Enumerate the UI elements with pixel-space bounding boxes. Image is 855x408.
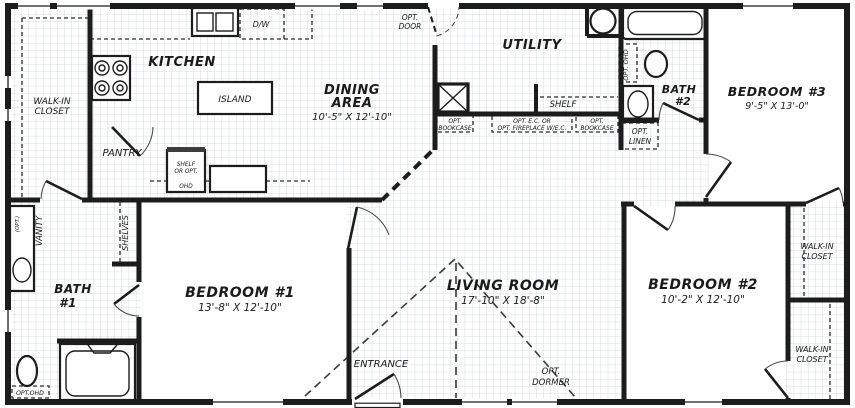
bedroom1-dims: 13'-8" X 12'-10" (198, 302, 282, 314)
bath2-label-2: #2 (675, 95, 691, 108)
kitchen-label: KITCHEN (148, 55, 215, 70)
kitchen-sink (192, 8, 238, 36)
bedroom1-label: BEDROOM #1 (185, 285, 295, 301)
toilet-bath1 (17, 356, 37, 386)
entrance-step (355, 403, 400, 407)
washer (591, 9, 616, 34)
opt-bookcase-left-1: OPT. (448, 118, 461, 125)
toilet-bath2 (645, 51, 667, 77)
shelves-label: SHELVES (121, 215, 130, 251)
shelf-ohd-label-2: OR OPT. (174, 169, 197, 175)
sink-bath2 (623, 86, 653, 122)
opt-dormer-label-1: OPT. (542, 367, 561, 377)
shelf-ohd-label-1: SHELF (177, 162, 196, 168)
dw-label: D/W (253, 20, 271, 29)
opt-door-opening (428, 3, 459, 10)
bedroom2-label: BEDROOM #2 (648, 277, 758, 293)
bedroom3-dims: 9'-5" X 13'-0" (745, 101, 809, 112)
living-dims: 17'-10" X 18'-8" (461, 295, 545, 307)
floorplan-page: KITCHEN DINING AREA 10'-5" X 12'-10" UTI… (0, 0, 855, 408)
living-label: LIVING ROOM (447, 278, 559, 294)
bathtub-bath1 (60, 344, 135, 400)
kitchen-appliance (210, 166, 266, 192)
dining-label-2: AREA (330, 96, 372, 111)
window-left-1 (5, 76, 12, 88)
bedroom1-floor (142, 203, 347, 400)
window-left-2 (5, 109, 12, 121)
vanity-bath1 (10, 206, 34, 291)
utility-label: UTILITY (502, 38, 562, 53)
window-closet-top-1 (18, 3, 50, 10)
opt-ohd-bath2-label: OPT. OHD (622, 49, 630, 80)
opt-fireplace-1: OPT. E.C. OR (513, 118, 551, 125)
closet-upper-label-1: WALK-IN (800, 242, 833, 251)
opt-ohd-bath1-label: OPT.OHD (16, 390, 44, 397)
water-heater (438, 84, 468, 112)
opt-bookcase-right-2: BOOKCASE (580, 125, 613, 132)
stove (92, 56, 130, 100)
shelf-ohd-label-3: OHD (179, 184, 193, 190)
bedroom2-dims: 10'-2" X 12'-10" (661, 294, 745, 306)
closet-upper-label-2: CLOSET (801, 252, 833, 261)
window-closet-top-2 (57, 3, 110, 10)
window-kitchen (295, 3, 340, 10)
closet-lower-label-1: WALK-IN (795, 345, 828, 354)
window-bedroom3 (743, 3, 793, 10)
opt-linen-label-2: LINEN (629, 137, 652, 146)
floorplan-diagram: KITCHEN DINING AREA 10'-5" X 12'-10" UTI… (0, 0, 855, 408)
closet-tl-label-1: WALK-IN (33, 97, 71, 107)
pantry-label: PANTRY (102, 148, 142, 159)
island-label: ISLAND (218, 95, 251, 105)
closet-lower-label-2: CLOSET (796, 355, 828, 364)
window-living-1 (462, 399, 507, 406)
entrance-label: ENTRANCE (354, 359, 409, 370)
bath1-label-2: #1 (59, 296, 77, 310)
window-bath1 (5, 310, 12, 332)
opt-fireplace-2: OPT. FIREPLACE W/E.C. (498, 125, 567, 132)
opt-bookcase-left-2: BOOKCASE (438, 125, 471, 132)
closet-tl-label-2: CLOSET (34, 107, 71, 117)
opt-door-label-1: OPT. (402, 13, 419, 22)
vanity-label: VANITY (35, 215, 45, 246)
bathtub-bath2 (623, 7, 707, 39)
window-living-2 (512, 399, 557, 406)
opt-linen-label-1: OPT. (632, 127, 649, 136)
window-bedroom2 (685, 399, 722, 406)
dining-dims: 10'-5" X 12'-10" (312, 112, 392, 123)
window-dining (357, 3, 383, 10)
bath1-label-1: BATH (54, 282, 92, 296)
opt-door-label-2: DOOR (399, 22, 422, 31)
window-bedroom1 (213, 399, 283, 406)
opt-bookcase-right-1: OPT. (590, 118, 603, 125)
bedroom3-label: BEDROOM #3 (728, 84, 827, 99)
shelf-utility-label: SHELF (550, 100, 577, 110)
opt-dormer-label-2: DORMER (532, 378, 570, 388)
vanity-opt-label: (OPT.) (15, 216, 21, 232)
